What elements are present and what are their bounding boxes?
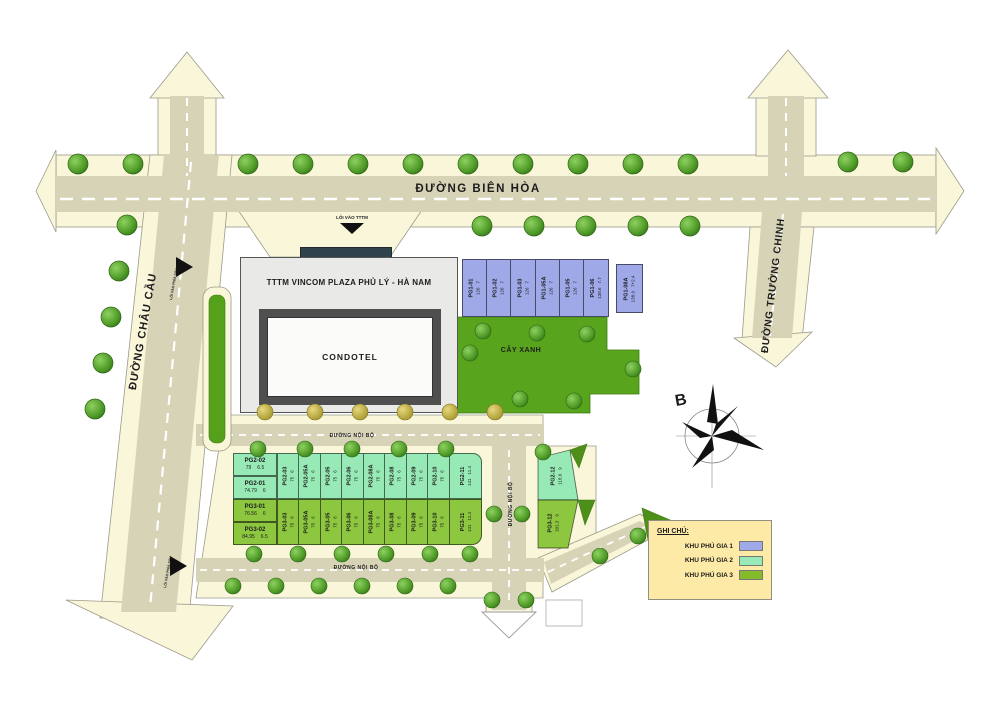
tree-icon [462,345,478,361]
condotel-frame: CONDOTEL [259,309,441,405]
plot-pg2-10[interactable]: PG2-10756 [427,453,450,499]
plot-pg2-12-label: PG2-12118.99 [536,452,576,500]
plot-pg3-09[interactable]: PG3-09756 [406,499,428,545]
plot-pg2-03[interactable]: PG2-03756 [277,453,299,499]
plot-pg1-01[interactable]: PG1-011267 [462,259,487,317]
plot-pg2-05[interactable]: PG2-05756 [320,453,342,499]
tree-icon [109,261,129,281]
tree-icon [678,154,698,174]
plot-pg3-05a[interactable]: PG3-05A756 [298,499,321,545]
tree-icon [579,326,595,342]
tree-icon [68,154,88,174]
road-arrow-north-right [748,50,828,98]
plot-pg3-12-label: PG3-12101.39 [534,500,572,546]
plot-pg2-09[interactable]: PG2-09756 [406,453,428,499]
tree-icon [403,154,423,174]
tree-icon [513,154,533,174]
plot-pg2-01[interactable]: PG2-0174.796 [233,476,277,499]
site-plan-base: B ĐƯỜNG BIÊN HÒA ĐƯỜNG CHÂU CẦU ĐƯỜNG TR… [0,0,1000,707]
plot-pg3-05[interactable]: PG3-05756 [320,499,342,545]
road-label-bien-hoa: ĐƯỜNG BIÊN HÒA [415,182,540,195]
compass [676,384,764,488]
plot-pg2-08a[interactable]: PG2-08A756 [363,453,385,499]
legend-row-khu3: KHU PHÚ GIA 3 [657,570,763,580]
tree-icon [893,152,913,172]
entrance-label-tttm: LỐI VÀO TTTM [336,214,368,220]
legend-title: GHI CHÚ: [657,528,763,535]
plot-pg3-11[interactable]: PG3-1114111.4 [449,499,482,545]
tree-icon [576,216,596,236]
tree-icon [623,154,643,174]
green-median [203,287,231,451]
plot-pg3-01[interactable]: PG3-0176.566 [233,499,277,522]
legend-swatch-khu3 [739,570,763,580]
legend: GHI CHÚ: KHU PHÚ GIA 1 KHU PHÚ GIA 2 KHU… [648,520,772,600]
legend-swatch-khu1 [739,541,763,551]
building-title: TTTM VINCOM PLAZA PHỦ LÝ - HÀ NAM [241,278,457,287]
tree-icon [117,215,137,235]
site-plan-canvas: B ĐƯỜNG BIÊN HÒA ĐƯỜNG CHÂU CẦU ĐƯỜNG TR… [0,0,1000,707]
road-label-noi-bo-bottom: ĐƯỜNG NỘI BỘ [334,563,379,571]
road-label-noi-bo-vertical: ĐƯỜNG NỘI BỘ [506,482,514,527]
plot-pg1-08a[interactable]: PG1-08A138.97+2.4 [616,264,643,313]
tree-icon [475,323,491,339]
plot-pg2-11[interactable]: PG2-1114111.4 [449,453,482,499]
plot-pg2-08[interactable]: PG2-08756 [384,453,407,499]
tree-icon [85,399,105,419]
tree-icon [293,154,313,174]
legend-row-khu1: KHU PHÚ GIA 1 [657,541,763,551]
tttm-building[interactable]: TTTM VINCOM PLAZA PHỦ LÝ - HÀ NAM CONDOT… [240,257,458,413]
tree-icon [123,154,143,174]
green-area-label: CÂY XANH [501,345,541,354]
tree-icon [566,393,582,409]
tree-icon [568,154,588,174]
tree-icon [838,152,858,172]
tree-icon [458,154,478,174]
plot-pg3-08a[interactable]: PG3-08A756 [363,499,385,545]
road-arrow-stub [482,612,536,638]
tree-icon [680,216,700,236]
plot-pg3-10[interactable]: PG3-10756 [427,499,450,545]
road-arrow-north-left [150,52,224,98]
plot-pg1-02[interactable]: PG1-021267 [486,259,511,317]
road-arrow-west [36,150,56,232]
tree-icon [512,391,528,407]
tree-icon [472,216,492,236]
plot-pg1-03[interactable]: PG1-031267 [510,259,536,317]
tree-icon [348,154,368,174]
tree-icon [628,216,648,236]
plot-pg1-05a[interactable]: PG1-05A1267 [535,259,560,317]
plot-pg3-08[interactable]: PG3-08756 [384,499,407,545]
tree-icon [101,307,121,327]
tree-icon [529,325,545,341]
condotel-label: CONDOTEL [267,317,433,397]
plot-pg1-05[interactable]: PG1-051267 [559,259,584,317]
plot-pg2-05a[interactable]: PG2-05A756 [298,453,321,499]
tree-icon [238,154,258,174]
road-label-noi-bo-mid: ĐƯỜNG NỘI BỘ [330,431,375,439]
legend-swatch-khu2 [739,556,763,566]
plot-pg3-02[interactable]: PG3-0284.956.5 [233,522,277,545]
plot-pg2-02[interactable]: PG2-02796.5 [233,453,277,476]
plot-pg3-06[interactable]: PG3-06756 [341,499,364,545]
plot-pg2-06[interactable]: PG2-06756 [341,453,364,499]
tree-icon [524,216,544,236]
tree-icon [93,353,113,373]
road-arrow-east [936,148,964,234]
building-outline-stub [546,600,582,626]
legend-row-khu2: KHU PHÚ GIA 2 [657,556,763,566]
tree-icon [625,361,641,377]
compass-north-label: B [674,391,688,410]
plot-pg1-06[interactable]: PG1-06138.67.7 [583,259,609,317]
compass-needle-icon [707,384,718,424]
plot-pg3-03[interactable]: PG3-03756 [277,499,299,545]
